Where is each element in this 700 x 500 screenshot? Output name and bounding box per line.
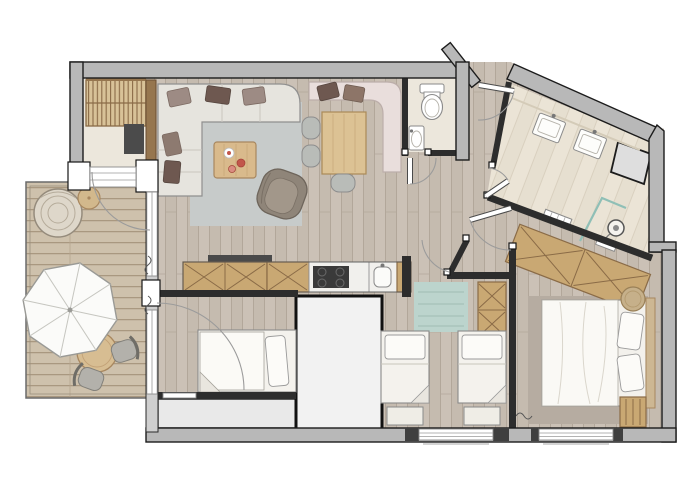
sofa-pillow <box>163 160 181 183</box>
rug <box>414 282 468 332</box>
wall-cap <box>463 235 469 241</box>
bench-pillow <box>343 84 365 102</box>
balcony <box>158 399 296 428</box>
walnut-panel <box>146 80 156 172</box>
sofa-pillow <box>205 85 231 104</box>
dining-chair <box>302 117 320 139</box>
shaft <box>296 296 382 432</box>
hanging-chair <box>34 189 82 237</box>
double-bed <box>542 298 655 408</box>
floor-plan-page <box>0 0 700 500</box>
wall-cap <box>425 149 431 155</box>
window <box>163 393 196 398</box>
washbasin <box>409 126 424 150</box>
wall-pier <box>136 160 158 192</box>
dining-chair <box>331 174 355 192</box>
wall <box>70 62 83 168</box>
wall <box>70 62 462 78</box>
window-reveal <box>531 428 539 441</box>
wall <box>428 150 456 156</box>
sofa-pillow <box>242 87 266 106</box>
tv-bar <box>208 255 272 262</box>
dining-table <box>322 112 366 174</box>
toilet <box>420 84 444 120</box>
wall-cap <box>489 162 495 168</box>
wall <box>509 248 516 428</box>
terrace <box>23 182 152 398</box>
sink-basin <box>374 267 391 287</box>
coffee-table <box>214 142 256 178</box>
wall-cap <box>402 149 408 155</box>
headboard <box>646 298 655 408</box>
wall-cap <box>509 243 516 249</box>
floor-plan-svg <box>0 0 700 500</box>
wall <box>456 62 469 160</box>
window <box>90 167 136 187</box>
dining-chair <box>302 145 320 167</box>
window <box>147 310 157 394</box>
window <box>147 192 157 276</box>
window-reveal <box>613 428 623 441</box>
wall <box>447 272 516 279</box>
sleeping-niche <box>198 330 296 392</box>
faucet <box>381 264 385 268</box>
window-reveal <box>493 428 509 441</box>
wall <box>402 256 411 297</box>
single-bed <box>458 331 506 425</box>
wall <box>662 250 676 442</box>
single-bed <box>381 331 429 425</box>
niche-bed <box>198 330 296 392</box>
window-reveal <box>405 428 419 441</box>
wall <box>649 125 664 252</box>
tv <box>124 124 144 154</box>
wall <box>152 290 298 297</box>
wall-pier <box>68 162 90 190</box>
